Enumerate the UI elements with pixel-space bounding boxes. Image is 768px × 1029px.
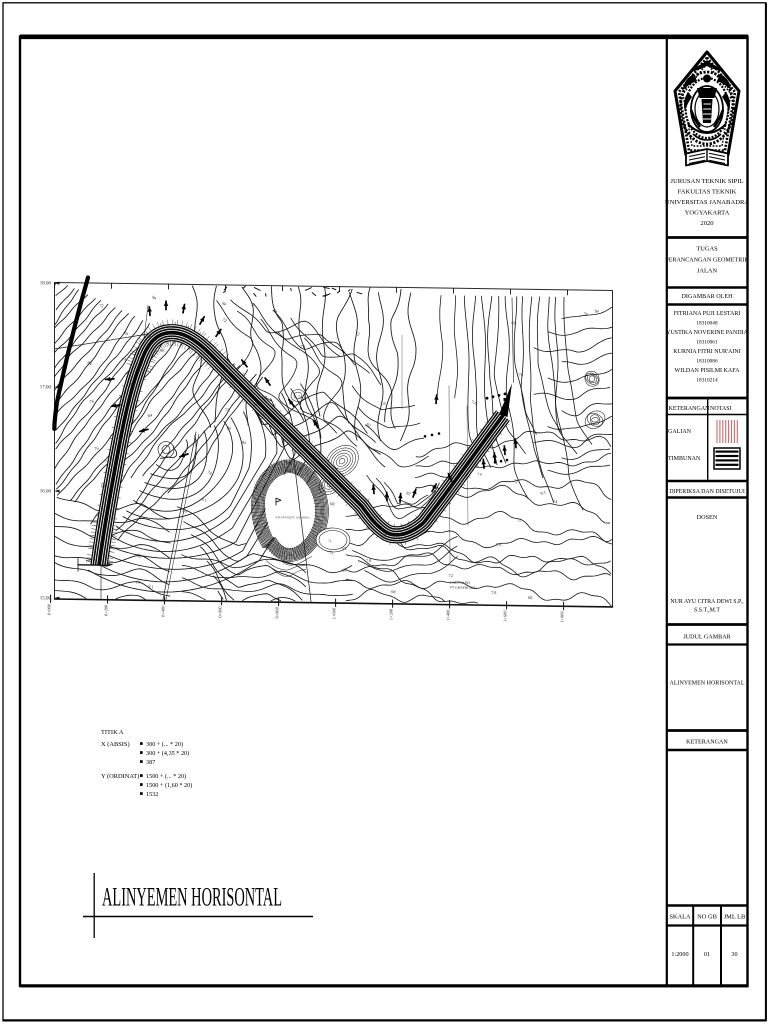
svg-text:72: 72 <box>517 517 522 522</box>
svg-text:JML LB: JML LB <box>724 914 746 921</box>
svg-text:18.00: 18.00 <box>40 281 52 286</box>
svg-text:1+800: 1+800 <box>560 610 565 622</box>
svg-text:ALINYEMEN HORISONTAL: ALINYEMEN HORISONTAL <box>102 882 282 912</box>
svg-text:300 + (... * 20): 300 + (... * 20) <box>146 741 183 748</box>
svg-text:300 + (4,35 * 20): 300 + (4,35 * 20) <box>146 750 189 757</box>
svg-text:387: 387 <box>146 759 155 766</box>
svg-text:01: 01 <box>704 951 710 958</box>
svg-text:8a: 8a <box>242 440 246 445</box>
svg-text:KURNIA FITRI NUR'AINI: KURNIA FITRI NUR'AINI <box>673 349 740 355</box>
svg-text:SKALA: SKALA <box>669 914 691 921</box>
svg-text:18310048: 18310048 <box>696 321 718 327</box>
svg-text:S.S.T.,M.T: S.S.T.,M.T <box>694 608 720 614</box>
svg-text:72: 72 <box>329 550 334 555</box>
svg-text:1+600: 1+600 <box>503 610 508 622</box>
svg-text:UNIVERSITAS JANABADRA: UNIVERSITAS JANABADRA <box>665 199 750 206</box>
svg-text:JURUSAN TEKNIK SIPIL: JURUSAN TEKNIK SIPIL <box>670 178 743 185</box>
svg-text:2020: 2020 <box>700 220 714 227</box>
svg-text:1:2000: 1:2000 <box>671 951 688 958</box>
svg-text:18310061: 18310061 <box>696 340 718 346</box>
svg-text:1532: 1532 <box>146 791 158 798</box>
svg-text:0+200: 0+200 <box>104 604 109 616</box>
svg-text:0+600: 0+600 <box>218 606 223 618</box>
svg-text:TITIK A: TITIK A <box>101 729 124 736</box>
svg-text:NO GB: NO GB <box>697 914 717 921</box>
svg-text:1500 + (... * 20): 1500 + (... * 20) <box>146 773 186 780</box>
svg-text:18310086: 18310086 <box>696 359 718 365</box>
svg-text:17.00: 17.00 <box>40 385 52 390</box>
svg-text:7a: 7a <box>328 539 332 543</box>
svg-text:X (ABSIS): X (ABSIS) <box>101 741 130 748</box>
svg-text:1+000: 1+000 <box>332 607 337 619</box>
svg-text:8a: 8a <box>227 425 232 430</box>
svg-text:PERANCANGAN GEOMETRIK: PERANCANGAN GEOMETRIK <box>665 258 749 264</box>
svg-text:0+400: 0+400 <box>161 605 166 617</box>
svg-text:JUDUL GAMBAR: JUDUL GAMBAR <box>683 635 731 641</box>
svg-text:NUR AYU CITRA DEWI S.P.,: NUR AYU CITRA DEWI S.P., <box>670 599 744 605</box>
svg-text:0+000: 0+000 <box>47 603 52 615</box>
svg-text:ALINYEMEN HORISONTAL: ALINYEMEN HORISONTAL <box>669 681 744 687</box>
svg-text:FT GRAFIK (DB): FT GRAFIK (DB) <box>450 586 477 590</box>
svg-text:JALAN: JALAN <box>697 268 718 275</box>
svg-text:DIPERIKSA DAN DISETUJUI: DIPERIKSA DAN DISETUJUI <box>669 489 745 495</box>
svg-text:0+800: 0+800 <box>275 606 280 618</box>
svg-text:15.00: 15.00 <box>40 596 52 601</box>
svg-text:YUSTIKA NOVERINE PANDIA: YUSTIKA NOVERINE PANDIA <box>666 330 748 336</box>
svg-text:18310214: 18310214 <box>696 378 718 384</box>
svg-text:TUGAS: TUGAS <box>696 246 718 253</box>
svg-text:YOGYAKARTA: YOGYAKARTA <box>685 210 730 217</box>
svg-text:72: 72 <box>224 407 229 413</box>
svg-text:GALI GARIS: GALI GARIS <box>450 581 470 585</box>
svg-text:NOTASI: NOTASI <box>710 406 732 412</box>
svg-text:FITRIANA PUJI LESTARI: FITRIANA PUJI LESTARI <box>674 311 741 317</box>
svg-text:DIGAMBAR OLEH: DIGAMBAR OLEH <box>682 294 734 300</box>
svg-text:GALIAN BATU GAMPING: GALIAN BATU GAMPING <box>275 515 311 520</box>
svg-text:FAKULTAS TEKNIK: FAKULTAS TEKNIK <box>678 189 737 196</box>
svg-text:1+400: 1+400 <box>446 609 451 621</box>
svg-text:1500 + (1,60 * 20): 1500 + (1,60 * 20) <box>146 782 192 789</box>
svg-text:72: 72 <box>99 303 104 309</box>
svg-text:WILDAN PISILMI KAFA: WILDAN PISILMI KAFA <box>675 368 741 374</box>
svg-text:TIMBUNAN: TIMBUNAN <box>668 456 701 462</box>
svg-text:GALIAN: GALIAN <box>668 429 692 435</box>
svg-text:DOSEN: DOSEN <box>697 514 718 521</box>
svg-text:KETERANGAN: KETERANGAN <box>669 406 711 412</box>
svg-text:7a: 7a <box>251 302 255 307</box>
svg-text:KETERANGAN: KETERANGAN <box>686 740 728 746</box>
svg-text:30: 30 <box>731 951 737 958</box>
svg-text:Y (ORDINAT): Y (ORDINAT) <box>101 773 139 780</box>
svg-text:16.00: 16.00 <box>40 489 52 494</box>
svg-text:1+200: 1+200 <box>389 608 394 620</box>
